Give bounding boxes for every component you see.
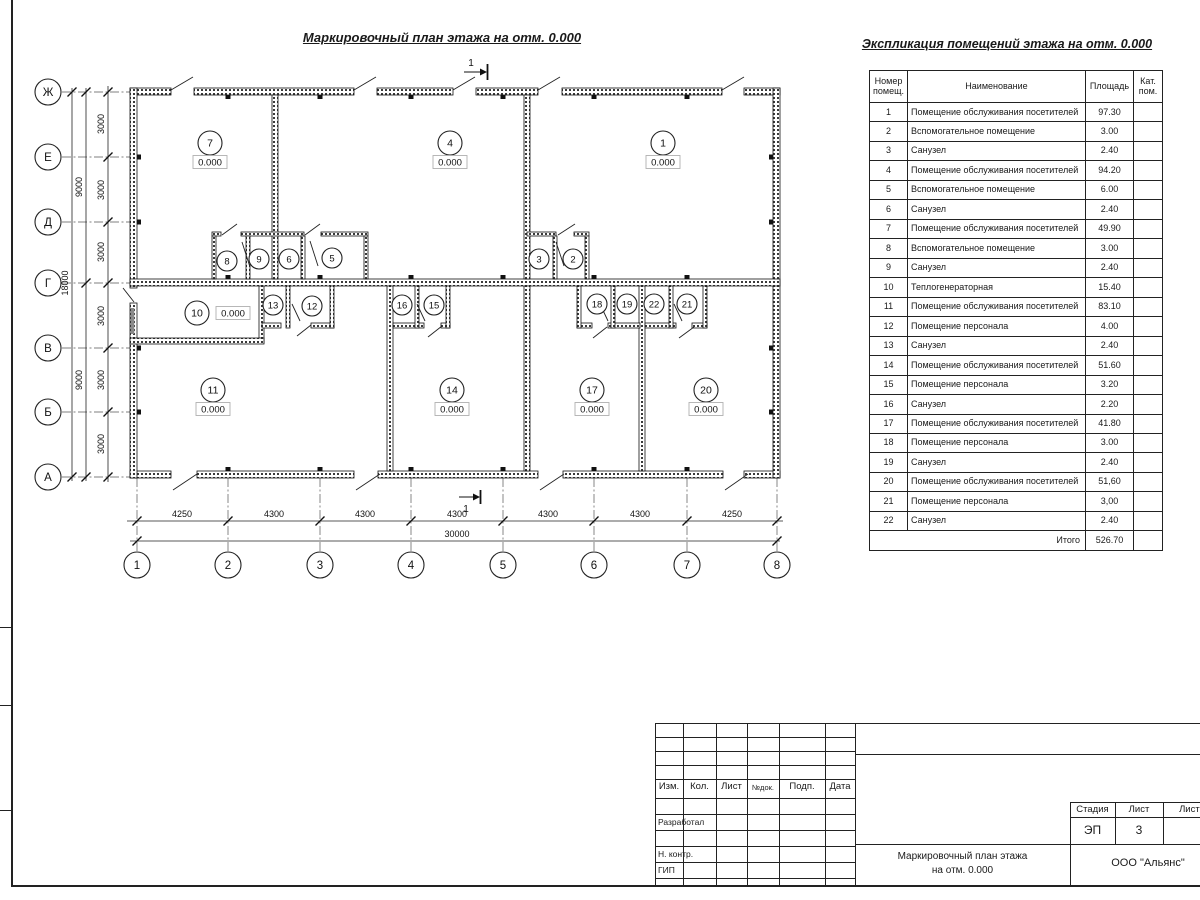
cell-room-cat	[1134, 219, 1163, 238]
schedule-header-area: Площадь	[1086, 71, 1134, 103]
wall	[286, 286, 290, 328]
wall-tick	[685, 275, 690, 279]
frame-margin-mark	[0, 627, 11, 628]
door-leaf	[725, 474, 748, 490]
axis-label: Б	[44, 407, 52, 419]
schedule-row: 12Помещение персонала4.00	[870, 317, 1163, 336]
wall	[130, 88, 137, 288]
elevation-label: 0.000	[580, 405, 604, 416]
cell-room-cat	[1134, 472, 1163, 491]
dim-label: 3000	[96, 434, 106, 454]
door-leaf	[123, 288, 134, 302]
titleblock-line	[1163, 802, 1164, 844]
drawing-sheet: Маркировочный план этажа на отм. 0.000 Э…	[0, 0, 1200, 900]
cell-room-area: 2.40	[1086, 511, 1134, 530]
schedule-header-row: Номер помещ. Наименование Площадь Кат. п…	[870, 71, 1163, 103]
dim-label: 9000	[74, 177, 84, 197]
dim-label: 4300	[355, 509, 375, 519]
schedule-body: 1Помещение обслуживания посетителей97.30…	[870, 103, 1163, 551]
cell-room-name: Санузел	[908, 200, 1086, 219]
cell-room-area: 83.10	[1086, 297, 1134, 316]
wall-tick	[769, 410, 773, 415]
schedule-row: 18Помещение персонала3.00	[870, 433, 1163, 452]
section-label: 1	[463, 504, 469, 515]
wall-tick	[409, 275, 414, 279]
cell-room-area: 3,00	[1086, 492, 1134, 511]
axis-label: 4	[408, 560, 415, 572]
room-number: 11	[208, 385, 219, 397]
sheet-value: 3	[1115, 823, 1163, 837]
wall-tick	[409, 95, 414, 99]
cell-room-name: Помещение обслуживания посетителей	[908, 472, 1086, 491]
cell-room-number: 3	[870, 141, 908, 160]
cell-room-cat	[1134, 414, 1163, 433]
stage-value: ЭП	[1070, 823, 1115, 837]
markers: ЖЕДГВБА1234567870.00040.00010.000110.000…	[35, 79, 790, 578]
cell-room-name: Теплогенераторная	[908, 278, 1086, 297]
schedule-row: 5Вспомогательное помещение6.00	[870, 180, 1163, 199]
titleblock-line	[1070, 802, 1200, 803]
wall-tick	[318, 467, 323, 471]
cell-room-number: 22	[870, 511, 908, 530]
axis-label: 8	[774, 560, 780, 572]
cell-room-cat	[1134, 239, 1163, 258]
schedule-total-row: Итого526.70	[870, 531, 1163, 551]
cell-room-number: 2	[870, 122, 908, 141]
rev-col-izm: Изм.	[655, 781, 683, 792]
cell-room-cat	[1134, 336, 1163, 355]
cell-room-number: 16	[870, 395, 908, 414]
room-number: 12	[307, 302, 318, 313]
cell-room-name: Помещение персонала	[908, 375, 1086, 394]
wall	[585, 236, 589, 279]
dim-label: 4250	[722, 509, 742, 519]
cell-room-name: Помещение персонала	[908, 317, 1086, 336]
cell-room-name: Помещение обслуживания посетителей	[908, 161, 1086, 180]
dim-label: 3000	[96, 370, 106, 390]
elevation-label: 0.000	[651, 158, 675, 169]
cell-room-number: 10	[870, 278, 908, 297]
cell-room-number: 7	[870, 219, 908, 238]
wall	[301, 236, 305, 279]
cell-room-name: Вспомогательное помещение	[908, 122, 1086, 141]
titleblock-line	[655, 751, 855, 752]
rev-col-data: Дата	[825, 781, 855, 792]
cell-room-area: 3.00	[1086, 122, 1134, 141]
room-number: 8	[224, 257, 229, 268]
door-leaf	[356, 474, 380, 490]
door-leaf	[722, 77, 744, 90]
cell-room-number: 18	[870, 433, 908, 452]
wall-tick	[769, 155, 773, 160]
wall	[387, 286, 393, 471]
cell-room-cat	[1134, 161, 1163, 180]
titleblock-line	[655, 862, 855, 863]
schedule-row: 15Помещение персонала3.20	[870, 375, 1163, 394]
cell-room-number: 12	[870, 317, 908, 336]
door-leaf	[593, 327, 607, 338]
cell-room-cat	[1134, 278, 1163, 297]
cell-room-name: Помещение обслуживания посетителей	[908, 103, 1086, 122]
cell-room-area: 4.00	[1086, 317, 1134, 336]
door-leaf	[173, 474, 197, 490]
room-number: 16	[397, 301, 408, 312]
wall	[669, 286, 673, 328]
cell-room-number: 5	[870, 180, 908, 199]
schedule-row: 6Санузел2.40	[870, 200, 1163, 219]
cell-room-cat	[1134, 375, 1163, 394]
wall	[321, 232, 368, 236]
dim-label: 4300	[264, 509, 284, 519]
cell-room-area: 3.00	[1086, 433, 1134, 452]
axis-label: 7	[684, 560, 690, 572]
cell-room-cat	[1134, 103, 1163, 122]
wall	[378, 471, 538, 478]
cell-room-area: 2.40	[1086, 258, 1134, 277]
dim-label: 4300	[538, 509, 558, 519]
door-leaf	[679, 327, 694, 338]
schedule-row: 17Помещение обслуживания посетителей41.8…	[870, 414, 1163, 433]
wall-tick	[409, 467, 414, 471]
wall-tick	[137, 155, 141, 160]
axis-label: 2	[225, 560, 231, 572]
rev-col-podp: Подп.	[779, 781, 825, 792]
rev-col-ndok: №док.	[747, 783, 779, 792]
cell-room-number: 9	[870, 258, 908, 277]
wall	[574, 232, 589, 236]
cell-room-number: 4	[870, 161, 908, 180]
schedule-row: 9Санузел2.40	[870, 258, 1163, 277]
titleblock-line	[655, 737, 855, 738]
dim-label: 3000	[96, 114, 106, 134]
cell-room-cat	[1134, 297, 1163, 316]
cell-room-cat	[1134, 200, 1163, 219]
schedule-header-num: Номер помещ.	[870, 71, 908, 103]
cell-room-cat	[1134, 180, 1163, 199]
schedule-row: 11Помещение обслуживания посетителей83.1…	[870, 297, 1163, 316]
wall-tick	[592, 275, 597, 279]
total-label: Итого	[870, 531, 1086, 551]
axis-label: Г	[45, 278, 52, 290]
schedule-row: 22Санузел2.40	[870, 511, 1163, 530]
cell-room-area: 2.40	[1086, 141, 1134, 160]
titleblock-line	[855, 754, 1200, 755]
room-number: 21	[682, 300, 693, 311]
cell-room-number: 13	[870, 336, 908, 355]
room-number: 13	[268, 301, 279, 312]
cell-room-cat	[1134, 122, 1163, 141]
cell-room-area: 15.40	[1086, 278, 1134, 297]
wall	[272, 95, 278, 279]
titleblock-line	[655, 765, 855, 766]
door-leaf	[453, 77, 475, 90]
wall-tick	[137, 346, 141, 351]
wall	[563, 471, 723, 478]
titleblock-line	[855, 723, 856, 886]
wall-tick	[137, 410, 141, 415]
door-leaf	[305, 224, 320, 235]
wall	[377, 88, 453, 95]
cell-room-cat	[1134, 433, 1163, 452]
schedule-header-name: Наименование	[908, 71, 1086, 103]
cell-room-area: 2.40	[1086, 200, 1134, 219]
total-value: 526.70	[1086, 531, 1134, 551]
sheet-label: Лист	[1115, 804, 1163, 815]
rev-col-list: Лист	[716, 781, 747, 792]
schedule-row: 3Санузел2.40	[870, 141, 1163, 160]
section-markers: 11	[459, 58, 488, 515]
cell-room-name: Помещение обслуживания посетителей	[908, 219, 1086, 238]
wall-tick	[685, 467, 690, 471]
dim-label: 9000	[74, 370, 84, 390]
wall-tick	[226, 95, 231, 99]
cell-room-name: Санузел	[908, 336, 1086, 355]
room-number: 18	[592, 300, 603, 311]
dim-label: 3000	[96, 306, 106, 326]
room-number: 2	[570, 255, 575, 266]
doc-title-line2: на отм. 0.000	[855, 865, 1070, 876]
cell-room-number: 1	[870, 103, 908, 122]
wall	[639, 286, 645, 471]
room-number: 5	[329, 254, 334, 265]
cell-room-area: 3.00	[1086, 239, 1134, 258]
cell-room-cat	[1134, 511, 1163, 530]
wall	[527, 232, 556, 236]
wall	[212, 236, 216, 279]
door-leaf	[292, 304, 300, 321]
wall-tick	[226, 275, 231, 279]
cell-room-cat	[1134, 356, 1163, 375]
cell-room-cat	[1134, 492, 1163, 511]
wall	[262, 323, 281, 328]
cell-room-number: 17	[870, 414, 908, 433]
frame-margin-mark	[0, 705, 11, 706]
door-leaf	[538, 77, 560, 90]
wall-tick	[592, 467, 597, 471]
cell-room-number: 21	[870, 492, 908, 511]
wall-tick	[226, 467, 231, 471]
axis-label: 5	[500, 560, 506, 572]
room-number: 4	[447, 138, 453, 150]
dim-total-label: 30000	[444, 529, 469, 539]
cell-room-name: Санузел	[908, 258, 1086, 277]
schedule-row: 1Помещение обслуживания посетителей97.30	[870, 103, 1163, 122]
room-number: 10	[191, 308, 203, 320]
cell-room-cat	[1134, 141, 1163, 160]
cell-room-area: 2.20	[1086, 395, 1134, 414]
dim-label: 4300	[630, 509, 650, 519]
titleblock-line	[655, 779, 855, 780]
cell-room-area: 2.40	[1086, 453, 1134, 472]
frame-margin-mark	[0, 810, 11, 811]
schedule-row: 7Помещение обслуживания посетителей49.90	[870, 219, 1163, 238]
cell-room-area: 2.40	[1086, 336, 1134, 355]
cell-room-name: Санузел	[908, 395, 1086, 414]
wall-tick	[318, 275, 323, 279]
cell-room-number: 8	[870, 239, 908, 258]
elevation-label: 0.000	[221, 309, 245, 320]
elevation-label: 0.000	[201, 405, 225, 416]
door-leaf	[428, 326, 442, 337]
wall	[194, 88, 354, 95]
cell-room-name: Вспомогательное помещение	[908, 239, 1086, 258]
window	[131, 308, 135, 334]
section-arrowhead	[473, 494, 480, 501]
room-number: 17	[586, 385, 598, 397]
schedule-row: 21Помещение персонала3,00	[870, 492, 1163, 511]
wall	[212, 232, 221, 236]
cell-room-number: 20	[870, 472, 908, 491]
elevation-label: 0.000	[440, 405, 464, 416]
cell-room-number: 6	[870, 200, 908, 219]
wall	[562, 88, 722, 95]
door-leaf	[297, 325, 311, 336]
cell-room-area: 51,60	[1086, 472, 1134, 491]
door-leaf	[354, 77, 376, 90]
wall-tick	[501, 275, 506, 279]
dim-label: 4250	[172, 509, 192, 519]
door-leaf	[310, 241, 318, 266]
axis-label: 6	[591, 560, 597, 572]
room-number: 1	[660, 138, 666, 150]
room-number: 22	[649, 300, 660, 311]
room-number: 6	[286, 255, 291, 266]
rev-col-kol: Кол.	[683, 781, 716, 792]
schedule-row: 4Помещение обслуживания посетителей94.20	[870, 161, 1163, 180]
dim-label: 3000	[96, 180, 106, 200]
elevation-label: 0.000	[694, 405, 718, 416]
axis-label: Ж	[43, 87, 54, 99]
room-number: 15	[429, 301, 440, 312]
axis-label: 1	[134, 560, 140, 572]
elevation-label: 0.000	[438, 158, 462, 169]
cell-room-number: 15	[870, 375, 908, 394]
schedule-row: 19Санузел2.40	[870, 453, 1163, 472]
company-name: ООО "Альянс"	[1070, 857, 1200, 869]
axis-label: В	[44, 343, 52, 355]
titleblock-line	[655, 723, 1200, 724]
wall-tick	[318, 95, 323, 99]
cell-room-name: Санузел	[908, 453, 1086, 472]
schedule-row: 8Вспомогательное помещение3.00	[870, 239, 1163, 258]
titleblock-line	[655, 798, 855, 799]
title-block: Изм. Кол. Лист №док. Подп. Дата Разработ…	[655, 723, 1200, 886]
wall	[577, 286, 581, 328]
room-schedule: Номер помещ. Наименование Площадь Кат. п…	[869, 70, 1142, 551]
schedule-row: 10Теплогенераторная15.40	[870, 278, 1163, 297]
titleblock-line	[655, 814, 855, 815]
schedule-header-cat: Кат. пом.	[1134, 71, 1163, 103]
cell-room-name: Санузел	[908, 141, 1086, 160]
door-leaf	[222, 224, 237, 235]
wall	[476, 88, 538, 95]
cell-room-area: 94.20	[1086, 161, 1134, 180]
door-leaf	[558, 224, 575, 235]
wall	[130, 338, 264, 344]
wall-tick	[685, 95, 690, 99]
cell-room-area: 41.80	[1086, 414, 1134, 433]
elevation-label: 0.000	[198, 158, 222, 169]
cell-room-number: 19	[870, 453, 908, 472]
wall-tick	[592, 95, 597, 99]
room-number: 7	[207, 138, 213, 150]
wall	[364, 236, 368, 279]
axis-label: Е	[44, 152, 52, 164]
room-number: 14	[446, 385, 458, 397]
cell-room-area: 6.00	[1086, 180, 1134, 199]
room-number: 9	[256, 255, 261, 266]
titleblock-line	[655, 830, 855, 831]
cell-room-name: Помещение обслуживания посетителей	[908, 356, 1086, 375]
titleblock-line	[1070, 817, 1200, 818]
cell-room-cat	[1134, 317, 1163, 336]
door-leaf	[171, 77, 193, 90]
wall	[197, 471, 354, 478]
cell-room-cat	[1134, 258, 1163, 277]
cell-room-cat	[1134, 531, 1163, 551]
wall-tick	[769, 346, 773, 351]
wall	[703, 286, 707, 328]
schedule-row: 13Санузел2.40	[870, 336, 1163, 355]
doc-title-line1: Маркировочный план этажа	[855, 851, 1070, 862]
axis-label: 3	[317, 560, 323, 572]
wall	[524, 286, 530, 471]
role-gip: ГИП	[655, 865, 718, 875]
schedule-row: 20Помещение обслуживания посетителей51,6…	[870, 472, 1163, 491]
titleblock-line	[1115, 802, 1116, 844]
wall-tick	[501, 467, 506, 471]
dim-label: 3000	[96, 242, 106, 262]
wall	[611, 286, 615, 328]
cell-room-name: Помещение обслуживания посетителей	[908, 297, 1086, 316]
cell-room-number: 14	[870, 356, 908, 375]
room-number: 3	[536, 255, 541, 266]
sheets-label: Листов	[1163, 804, 1200, 815]
cell-room-name: Помещение обслуживания посетителей	[908, 414, 1086, 433]
schedule-table: Номер помещ. Наименование Площадь Кат. п…	[869, 70, 1163, 551]
wall	[330, 286, 334, 328]
wall-tick	[769, 220, 773, 225]
stage-label: Стадия	[1070, 804, 1115, 815]
room-number: 20	[700, 385, 712, 397]
cell-room-number: 11	[870, 297, 908, 316]
schedule-row: 2Вспомогательное помещение3.00	[870, 122, 1163, 141]
cell-room-area: 51.60	[1086, 356, 1134, 375]
cell-room-cat	[1134, 395, 1163, 414]
schedule-row: 14Помещение обслуживания посетителей51.6…	[870, 356, 1163, 375]
titleblock-line	[655, 846, 855, 847]
cell-room-name: Помещение персонала	[908, 492, 1086, 511]
cell-room-cat	[1134, 453, 1163, 472]
cell-room-area: 97.30	[1086, 103, 1134, 122]
wall	[524, 95, 530, 279]
section-arrowhead	[480, 69, 487, 76]
role-ncontrol: Н. контр.	[655, 849, 718, 859]
role-developed: Разработал	[655, 817, 718, 827]
cell-room-name: Помещение персонала	[908, 433, 1086, 452]
cell-room-name: Вспомогательное помещение	[908, 180, 1086, 199]
door-leaf	[540, 474, 564, 490]
titleblock-line	[655, 878, 855, 879]
wall-tick	[137, 220, 141, 225]
wall-tick	[501, 95, 506, 99]
axis-label: Д	[44, 217, 52, 229]
section-label: 1	[468, 58, 474, 69]
wall	[446, 286, 450, 328]
cell-room-area: 49.90	[1086, 219, 1134, 238]
wall	[241, 232, 304, 236]
cell-room-area: 3.20	[1086, 375, 1134, 394]
